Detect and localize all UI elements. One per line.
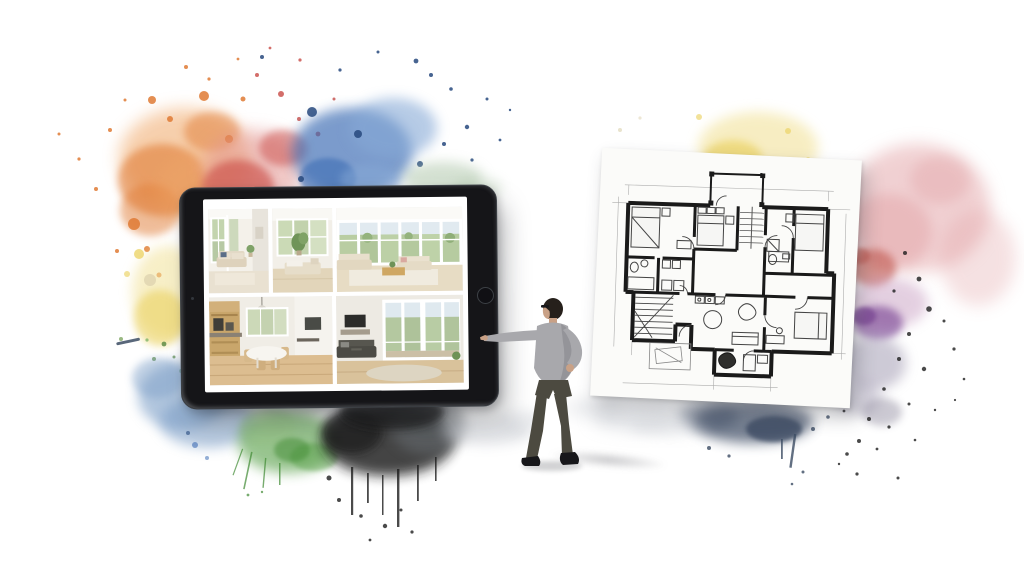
rose-purple-splash — [835, 144, 1016, 480]
pointing-hand — [480, 335, 488, 341]
front-camera-icon — [191, 297, 194, 300]
photo-living-terrace — [336, 295, 464, 384]
ink-splash-bottom — [566, 399, 830, 485]
stairs-lower — [634, 294, 673, 338]
photo-living-room-sofa — [208, 209, 269, 294]
blue-splash — [260, 51, 511, 199]
floor-plan-drawing — [590, 148, 862, 408]
floor-plan-sheet — [590, 148, 862, 408]
tablet-screen — [203, 197, 469, 393]
left-leg — [526, 392, 547, 459]
tablet — [179, 184, 499, 409]
glasses — [541, 305, 549, 308]
stairs-upper — [739, 206, 764, 249]
photo-kitchen-dining — [209, 296, 333, 385]
ink-speckles — [838, 251, 966, 480]
right-shoe — [560, 452, 579, 465]
left-shoe — [521, 456, 540, 466]
pointing-arm — [484, 330, 539, 342]
collage-canvas: { "scene": { "title": "Real-estate water… — [0, 0, 1024, 576]
green-splash — [232, 409, 338, 496]
back-hand — [566, 364, 574, 372]
photo-lounge-with-plant — [272, 208, 333, 293]
pointing-man — [477, 292, 597, 472]
photo-panorama-living — [336, 207, 463, 292]
photo-gallery-grid — [203, 197, 469, 393]
right-leg — [554, 394, 573, 456]
